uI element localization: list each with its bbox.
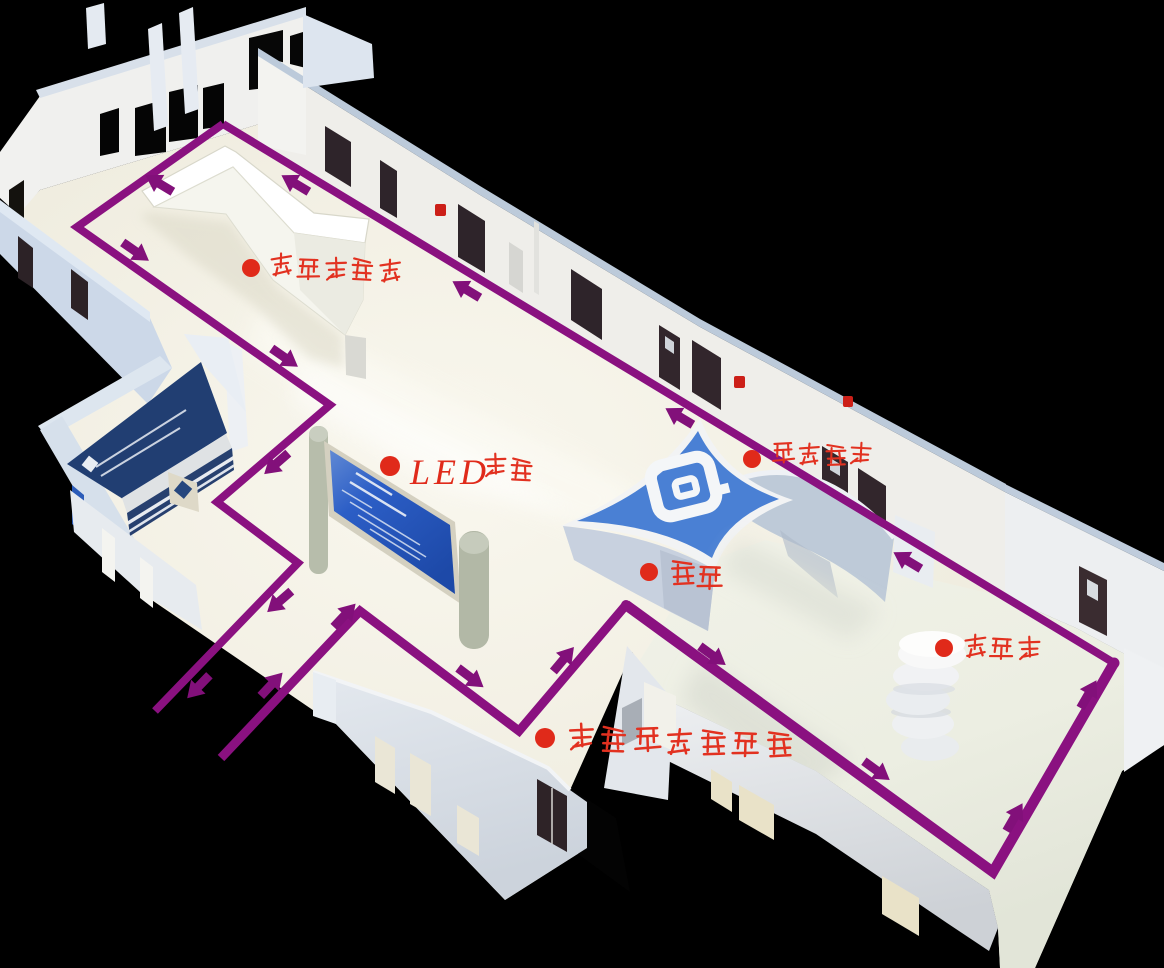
svg-text:LED: LED [409,452,490,492]
